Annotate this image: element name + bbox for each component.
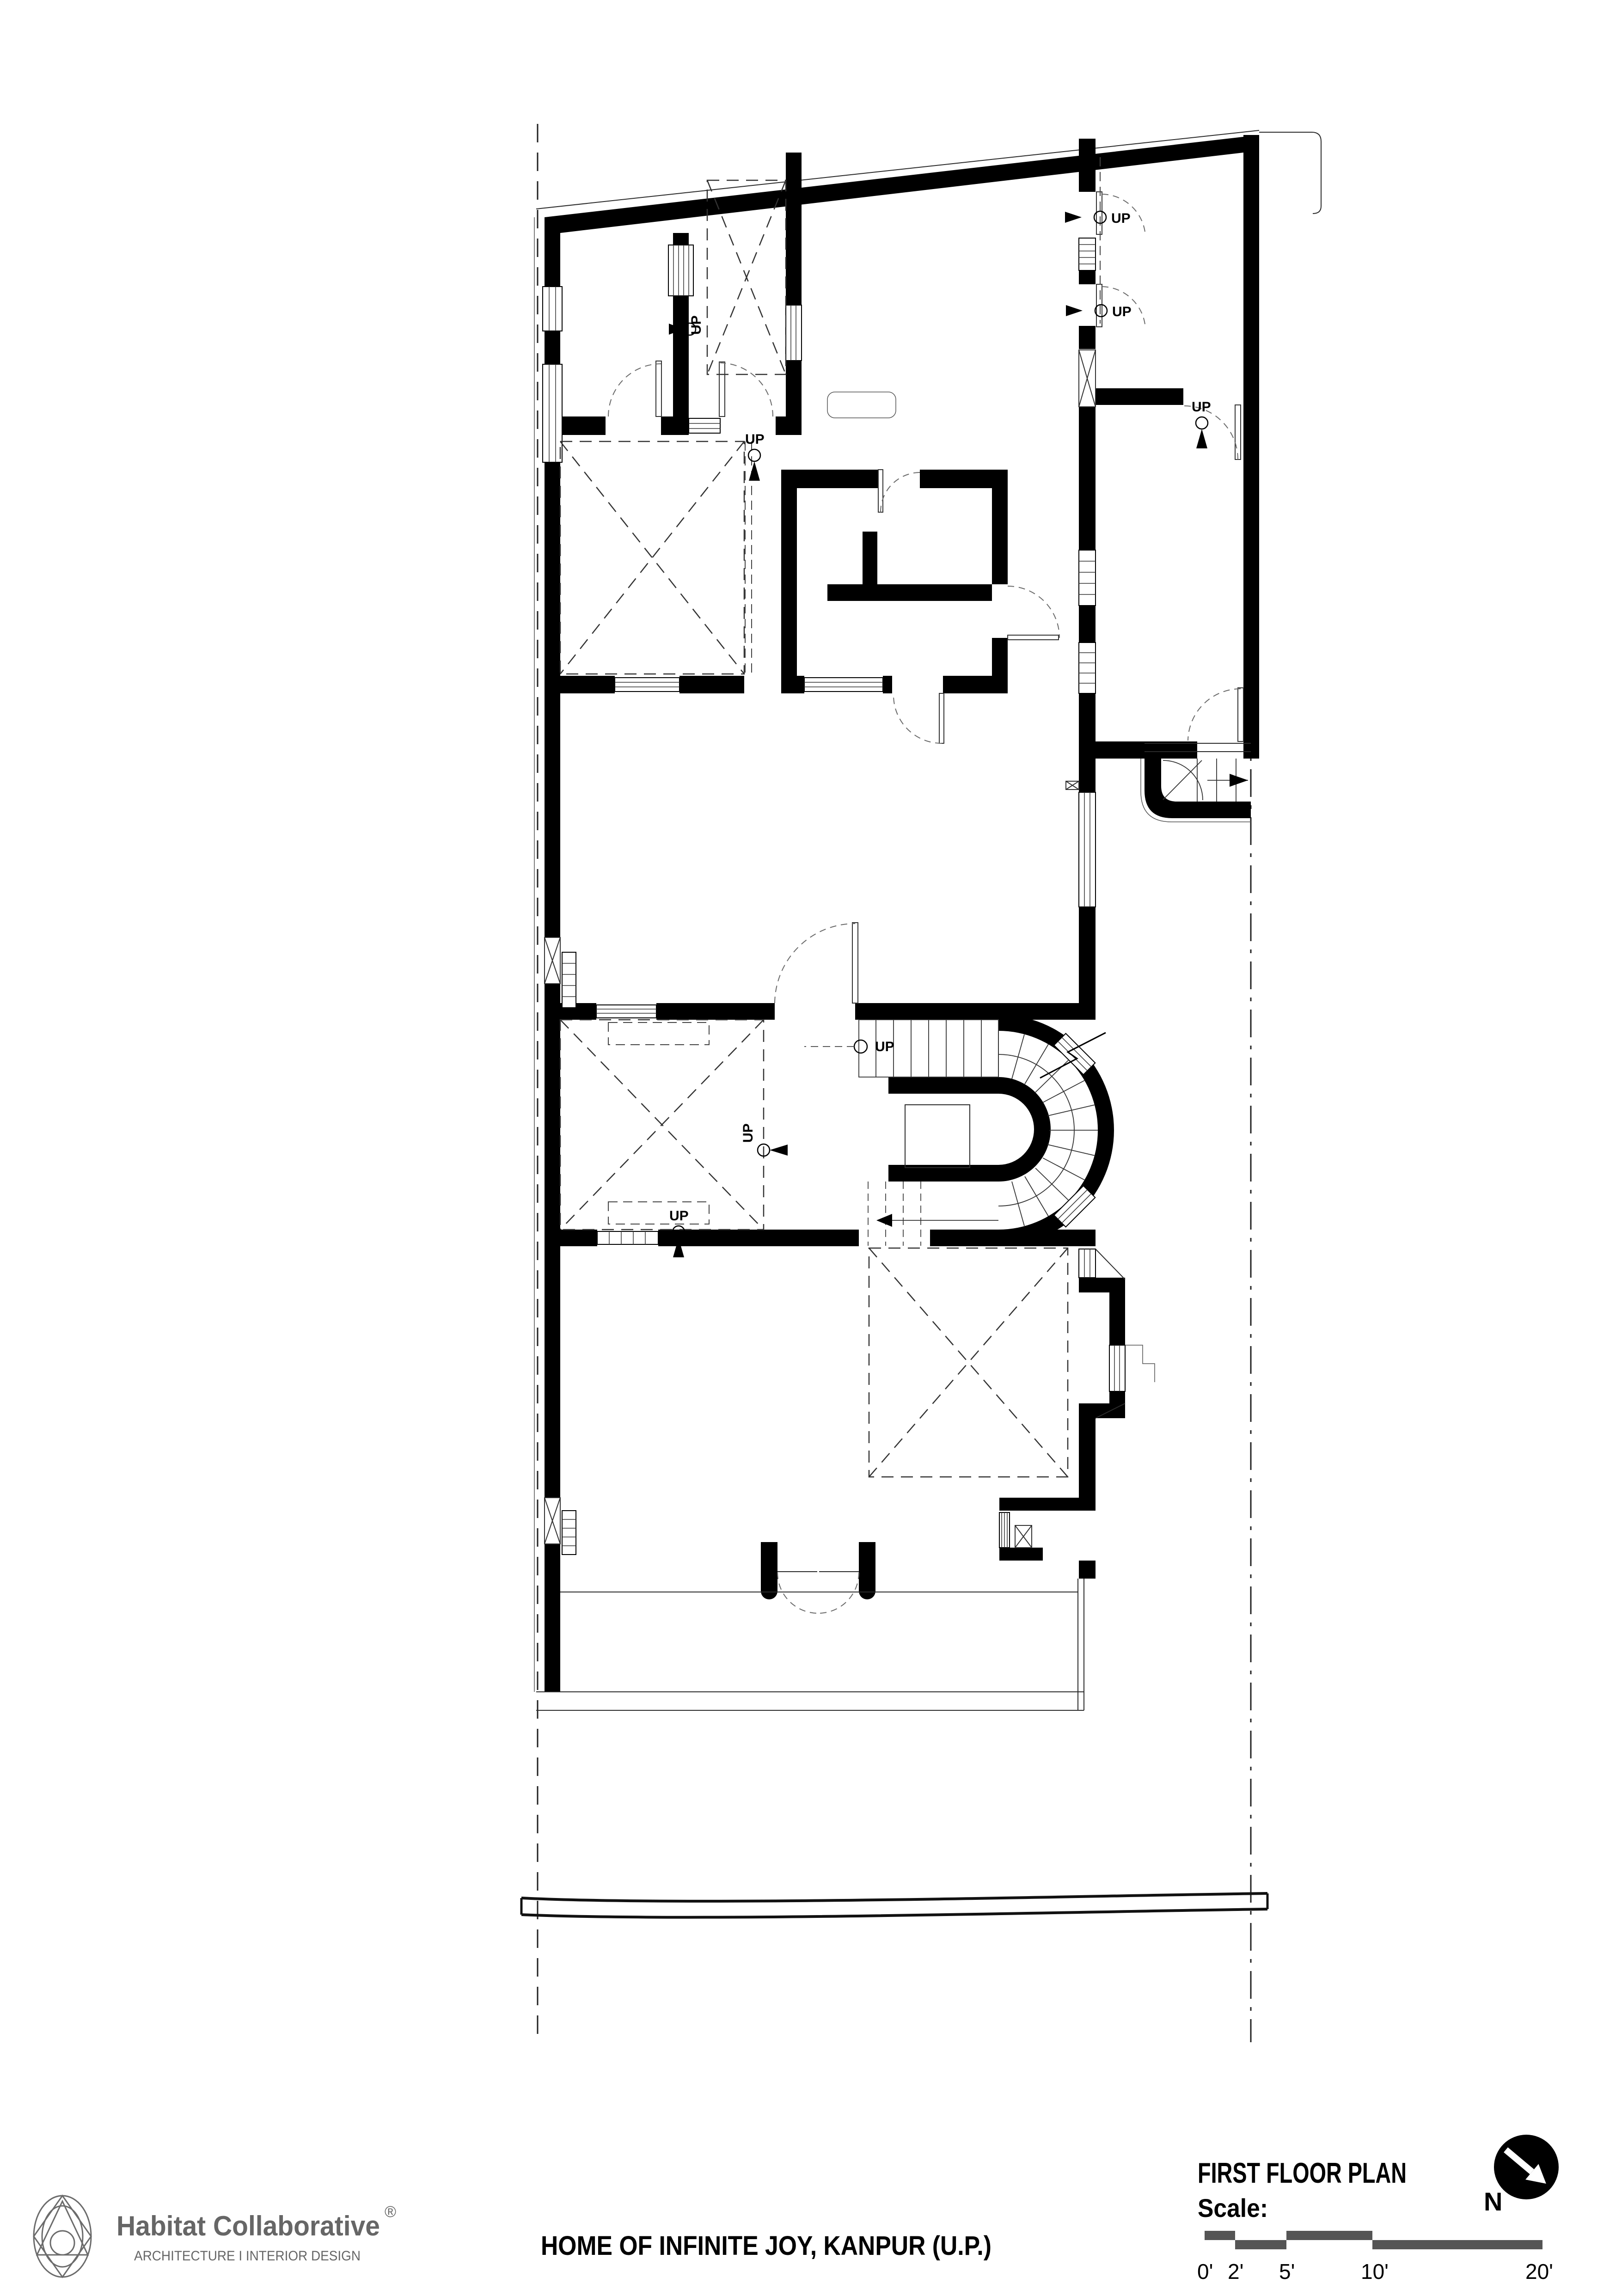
north-label: N: [1484, 2187, 1502, 2216]
scale-bar: [1205, 2231, 1542, 2249]
scale-tick-0: 0': [1197, 2259, 1213, 2284]
firm-name: Habitat Collaborative: [116, 2210, 380, 2241]
scale-tick-5: 5': [1279, 2259, 1295, 2284]
up-label: UP: [669, 1208, 689, 1224]
sheet: UP UP UP UP UP UP UP: [0, 0, 1622, 2296]
north-arrow-icon: [1494, 2135, 1559, 2199]
firm-tagline: ARCHITECTURE I INTERIOR DESIGN: [134, 2248, 361, 2264]
up-marker: UP: [804, 1039, 894, 1054]
up-label: UP: [741, 1123, 756, 1143]
column-markers: [545, 350, 1096, 1548]
title-block: Habitat Collaborative ® ARCHITECTURE I I…: [34, 2135, 1559, 2284]
doors: [608, 192, 1243, 1613]
drawing-title: FIRST FLOOR PLAN: [1198, 2157, 1407, 2189]
walls: [545, 135, 1259, 1692]
up-label: UP: [745, 432, 765, 447]
up-label: UP: [1112, 304, 1132, 319]
up-marker: UP: [1192, 399, 1211, 448]
up-marker: UP: [745, 432, 765, 481]
up-label: UP: [689, 315, 704, 335]
scale-label: Scale:: [1198, 2193, 1268, 2223]
windows: [543, 238, 1125, 1555]
up-label: UP: [1111, 211, 1131, 226]
up-label: UP: [1192, 399, 1211, 415]
firm-registered-mark: ®: [385, 2203, 396, 2221]
up-label: UP: [875, 1039, 894, 1054]
scale-tick-20: 20': [1525, 2259, 1553, 2284]
scale-tick-2: 2': [1228, 2259, 1243, 2284]
firm-logo-icon: [34, 2196, 91, 2277]
scale-tick-10: 10': [1361, 2259, 1389, 2284]
project-title: HOME OF INFINITE JOY, KANPUR (U.P.): [541, 2231, 992, 2261]
void-markers: [560, 157, 1100, 1477]
